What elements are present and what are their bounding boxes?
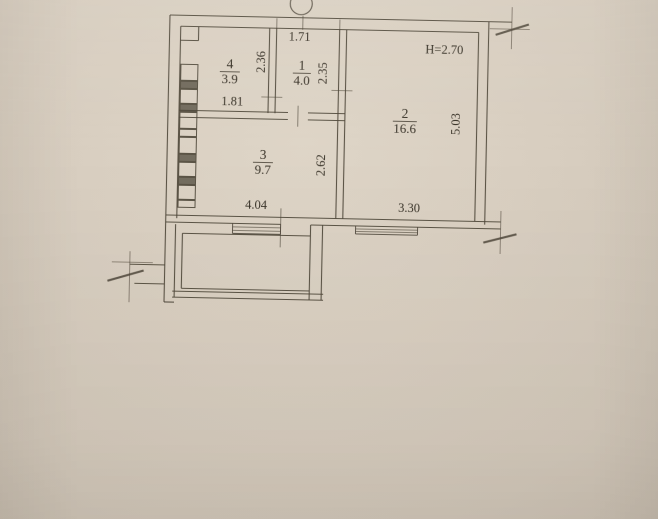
wall-line [268,28,270,113]
wall-line [181,26,479,32]
wall-line [166,215,501,222]
wall-line [475,32,479,221]
room-number: 1 [298,58,305,73]
room-area: 9.7 [255,162,272,177]
wall-line [343,30,347,219]
vent-shaft-box [178,200,195,207]
room-number: 3 [260,147,267,162]
dimension-extension-line [129,251,130,302]
wall-line [166,222,281,224]
dimension-3.30: 3.30 [398,201,420,215]
window-symbol-1 [232,223,280,234]
vent-shaft-box [179,162,196,176]
wall-line [164,15,170,302]
wall-line [172,297,323,300]
wall-line [181,233,182,288]
room-area: 4.0 [293,73,310,88]
vent-shaft [178,64,198,207]
wall-line [179,117,288,119]
room-number: 2 [401,106,408,121]
wall-line [308,113,345,114]
window-pane-line [233,230,281,231]
window-pane-line [356,229,418,230]
room-label-1: 14.0 [293,58,312,88]
vent-shaft-box [178,177,195,184]
wall-line [174,224,176,297]
dimension-2.62: 2.62 [314,154,328,176]
dimension-1.71: 1.71 [288,29,310,43]
wall-line [275,28,277,113]
wall-line [311,225,501,229]
vent-shaft-box [180,104,197,111]
axis-marker-circle [290,0,312,15]
wall-line [172,291,323,294]
floor-plan-svg: 14.0216.639.743.91.712.362.351.812.625.0… [0,0,658,519]
vent-shaft-box [179,137,196,153]
window-sill-line [355,234,417,235]
plan-group: 14.0216.639.743.91.712.362.351.812.625.0… [107,0,530,310]
dimension-extension-line [511,7,512,49]
dimension-2.35: 2.35 [316,62,330,84]
dimension-extension-line [112,262,153,263]
room-label-3: 39.7 [253,147,274,177]
dimension-extension-line [500,211,501,254]
vent-shaft-box [180,89,197,103]
room-number: 4 [226,56,233,71]
room-area: 3.9 [221,71,238,86]
window-pane-line [233,227,281,228]
wall-line [134,283,164,284]
vent-shaft-box [179,154,196,161]
wall-line [170,15,512,22]
window-pane-line [356,231,418,232]
dimension-4.04: 4.04 [245,198,268,212]
wall-line [321,225,323,300]
room-area: 16.6 [393,121,417,136]
dimension-1.81: 1.81 [221,94,243,108]
room-label-2: 216.6 [393,106,418,136]
ceiling-height-note: H=2.70 [425,42,463,57]
vent-shaft-box [181,64,198,80]
vent-shaft-box [180,112,197,128]
wall-line [130,264,165,265]
wall-line [181,288,309,291]
wall-line [308,120,345,121]
wall-line [485,22,489,225]
wall-line [336,30,340,219]
vent-shaft-box [180,81,197,88]
vent-shaft-box [178,185,195,199]
dimension-slash [483,234,516,244]
floor-plan-photo: 14.0216.639.743.91.712.362.351.812.625.0… [0,0,658,519]
dimension-5.03: 5.03 [449,113,463,135]
vent-shaft-box [179,129,196,136]
room-label-4: 43.9 [220,56,241,86]
dimension-2.36: 2.36 [254,51,268,73]
dimension-slash [107,270,143,282]
